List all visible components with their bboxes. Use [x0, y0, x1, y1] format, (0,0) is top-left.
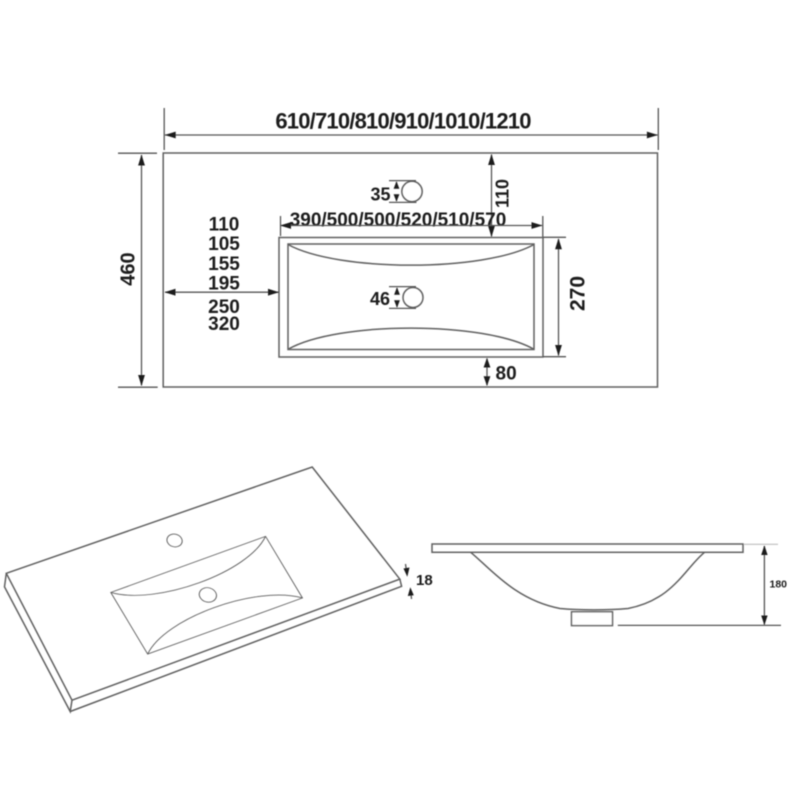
svg-text:46: 46 [370, 289, 390, 309]
svg-text:80: 80 [496, 364, 517, 385]
svg-text:155: 155 [208, 254, 240, 275]
svg-text:180: 180 [770, 579, 788, 591]
svg-text:195: 195 [208, 274, 240, 295]
svg-text:610/710/810/910/1010/1210: 610/710/810/910/1010/1210 [275, 109, 531, 134]
svg-text:270: 270 [567, 276, 590, 311]
svg-text:390/500/500/520/510/570: 390/500/500/520/510/570 [290, 210, 507, 231]
svg-text:320: 320 [208, 314, 240, 335]
svg-text:110: 110 [493, 179, 513, 208]
svg-text:35: 35 [370, 185, 390, 205]
svg-text:110: 110 [209, 215, 240, 236]
svg-text:460: 460 [118, 252, 140, 285]
svg-text:105: 105 [208, 234, 240, 255]
svg-text:18: 18 [416, 572, 433, 589]
